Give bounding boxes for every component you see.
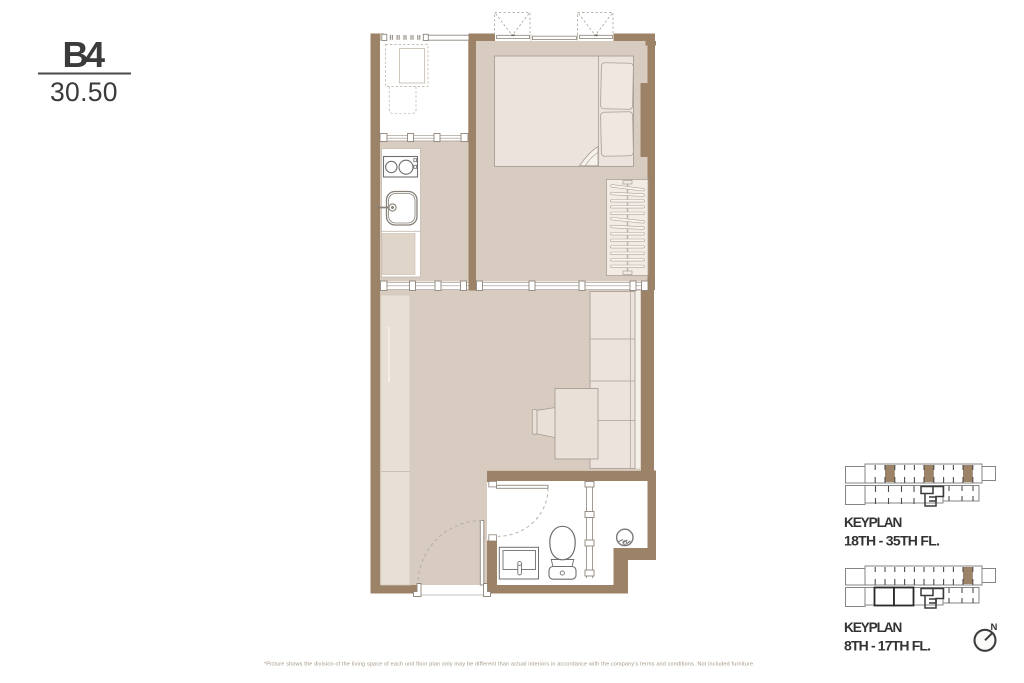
svg-text:18TH - 35TH FL.: 18TH - 35TH FL. (844, 533, 940, 549)
svg-text:KEYPLAN: KEYPLAN (844, 620, 903, 635)
svg-text:B4: B4 (63, 34, 106, 75)
svg-text:30.50: 30.50 (50, 77, 118, 107)
svg-text:N: N (991, 622, 998, 633)
svg-text:*Picture shows the division of: *Picture shows the division of the livin… (264, 662, 753, 668)
svg-text:KEYPLAN: KEYPLAN (844, 515, 903, 530)
svg-text:8TH - 17TH FL.: 8TH - 17TH FL. (844, 638, 931, 654)
